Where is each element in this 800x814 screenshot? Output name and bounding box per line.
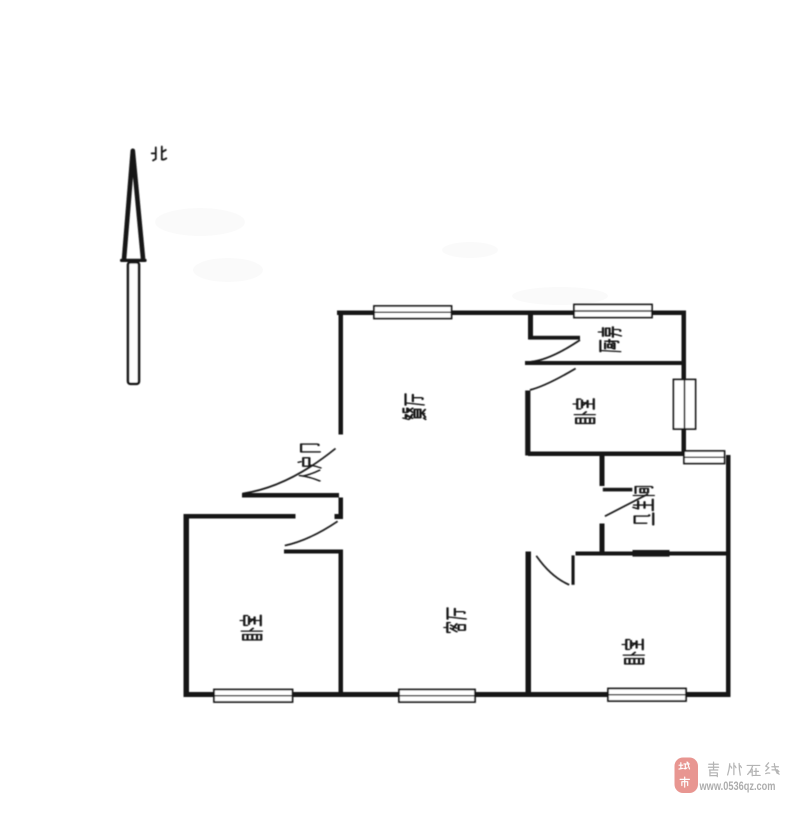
svg-text:www.0536qz.com: www.0536qz.com xyxy=(699,780,776,793)
